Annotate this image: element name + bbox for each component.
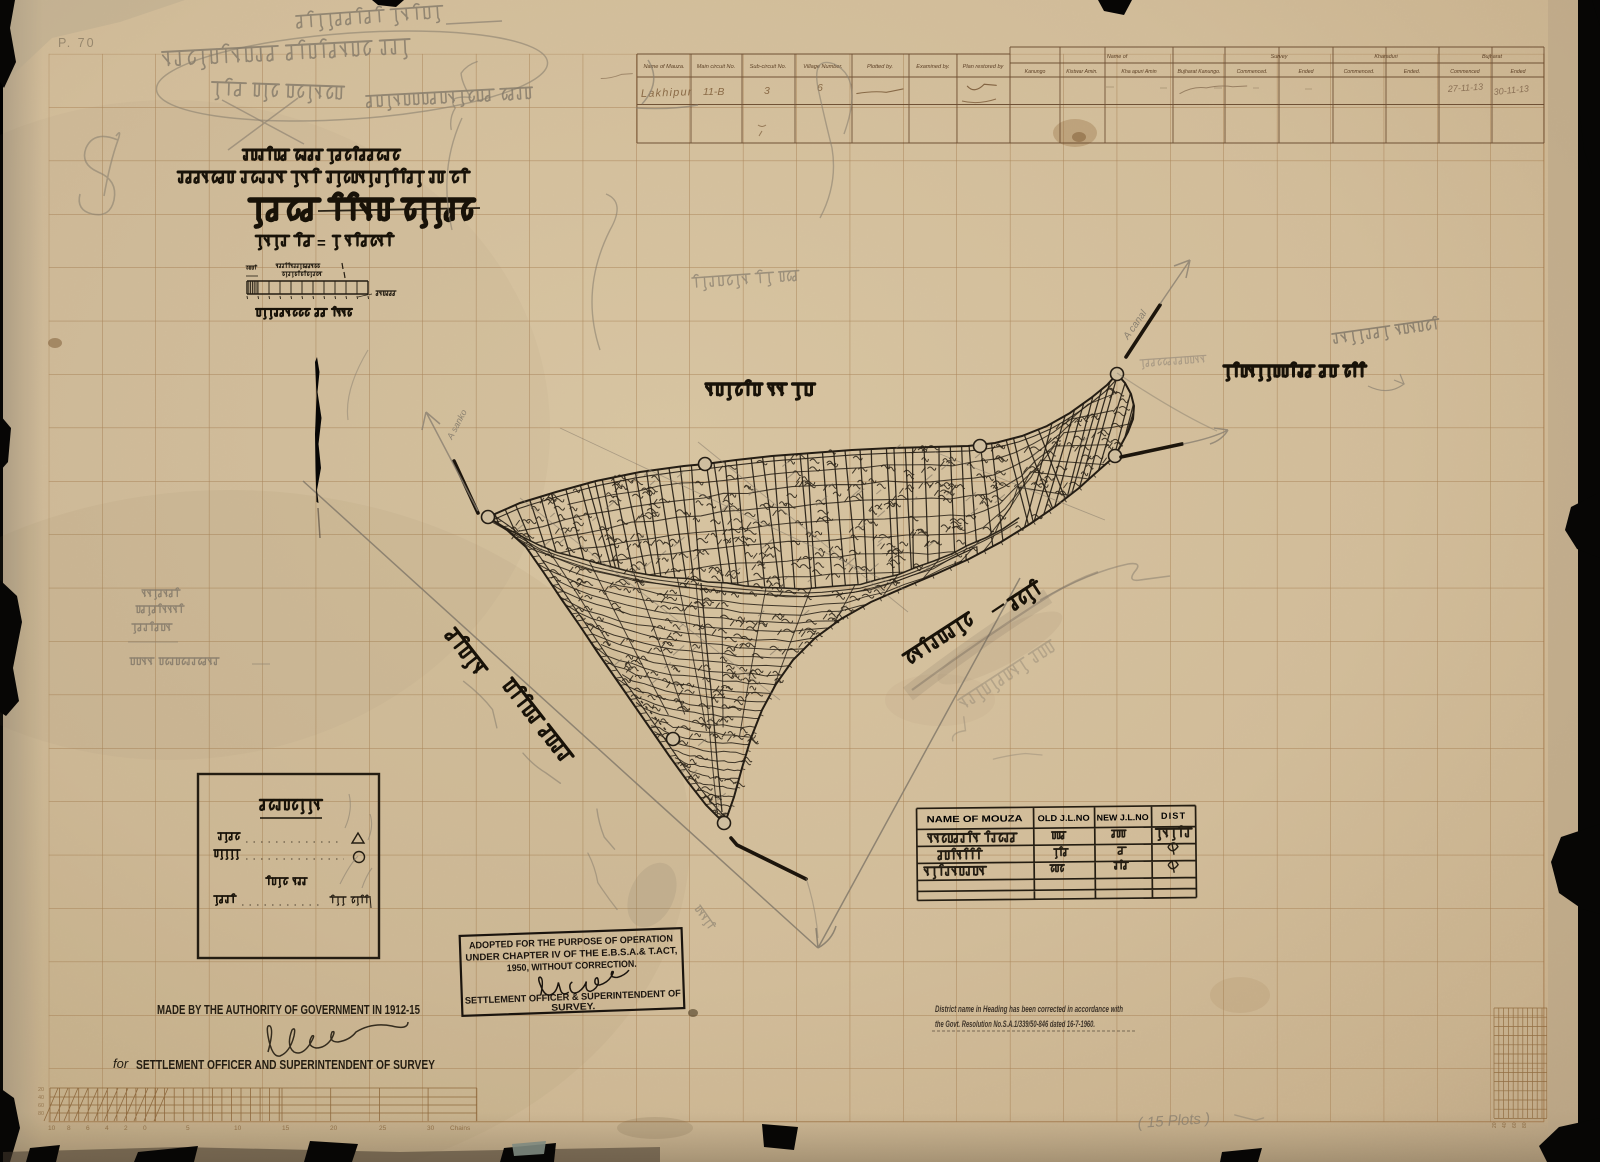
svg-text:2: 2 — [124, 1125, 128, 1132]
svg-text:Bujharat: Bujharat — [1482, 54, 1503, 60]
svg-text:10: 10 — [48, 1125, 56, 1132]
svg-text:Main circuit No.: Main circuit No. — [697, 64, 736, 70]
svg-text:80: 80 — [38, 1111, 44, 1117]
svg-text:25: 25 — [379, 1125, 387, 1132]
svg-text:Survey: Survey — [1271, 54, 1288, 60]
svg-text:OLD J.L.NO: OLD J.L.NO — [1038, 813, 1091, 824]
svg-text:MADE BY THE AUTHORITY OF GOVER: MADE BY THE AUTHORITY OF GOVERNMENT IN 1… — [157, 1003, 420, 1017]
svg-text:P. 70: P. 70 — [58, 36, 96, 50]
svg-text:60: 60 — [38, 1103, 44, 1109]
svg-text:Kharaduri: Kharaduri — [1374, 54, 1398, 60]
svg-text:Kanungo: Kanungo — [1025, 69, 1046, 75]
svg-text:NAME OF MOUZA: NAME OF MOUZA — [927, 813, 1024, 824]
svg-text:Ended: Ended — [1298, 69, 1314, 75]
svg-text:15: 15 — [282, 1125, 290, 1132]
svg-text:5: 5 — [186, 1125, 190, 1132]
svg-text:Ended.: Ended. — [1404, 69, 1420, 75]
svg-text:10: 10 — [234, 1125, 242, 1132]
svg-text:6: 6 — [86, 1125, 90, 1132]
svg-text:Name of: Name of — [1107, 54, 1128, 60]
svg-text:40: 40 — [38, 1095, 44, 1101]
svg-text:=: = — [317, 235, 326, 252]
svg-text:0: 0 — [143, 1125, 147, 1132]
svg-text:Commenced.: Commenced. — [1237, 69, 1268, 75]
svg-text:Examined by.: Examined by. — [916, 64, 950, 70]
svg-text:20: 20 — [1492, 1122, 1498, 1128]
svg-text:Kistwar Amin.: Kistwar Amin. — [1066, 69, 1098, 75]
svg-text:30: 30 — [427, 1125, 435, 1132]
svg-text:Plotted by.: Plotted by. — [867, 64, 893, 70]
svg-text:Bujharat Kanungo.: Bujharat Kanungo. — [1178, 69, 1221, 75]
svg-text:Name of Mauza.: Name of Mauza. — [643, 64, 684, 70]
svg-text:20: 20 — [38, 1087, 44, 1093]
svg-text:11-B: 11-B — [703, 86, 724, 98]
svg-text:NEW J.L.NO: NEW J.L.NO — [1097, 812, 1149, 823]
svg-text:DIST: DIST — [1161, 811, 1186, 821]
svg-text:60: 60 — [1512, 1122, 1518, 1128]
svg-text:Lakhipur: Lakhipur — [641, 86, 693, 100]
svg-text:for: for — [113, 1056, 129, 1071]
svg-text:District name in Heading has b: District name in Heading has been correc… — [935, 1004, 1123, 1015]
svg-text:20: 20 — [330, 1125, 338, 1132]
svg-text:Plan restored by: Plan restored by — [963, 64, 1005, 70]
svg-text:the Govt. Resolution No.S.A.1/: the Govt. Resolution No.S.A.1/339/50-846… — [935, 1019, 1095, 1030]
svg-text:SURVEY.: SURVEY. — [551, 1001, 595, 1014]
svg-text:80: 80 — [1522, 1122, 1528, 1128]
svg-text:Ended: Ended — [1510, 69, 1526, 75]
svg-text:Commenced.: Commenced. — [1344, 69, 1375, 75]
svg-text:3: 3 — [764, 85, 770, 97]
svg-text:40: 40 — [1502, 1122, 1508, 1128]
svg-text:8: 8 — [67, 1125, 71, 1132]
svg-text:Kha apuri Amin: Kha apuri Amin — [1121, 69, 1156, 75]
svg-text:Chains: Chains — [450, 1125, 471, 1132]
svg-text:SETTLEMENT OFFICER AND SUPERIN: SETTLEMENT OFFICER AND SUPERINTENDENT OF… — [136, 1058, 436, 1072]
svg-text:Commenced: Commenced — [1450, 69, 1481, 75]
svg-text:4: 4 — [105, 1125, 109, 1132]
svg-text:Sub-circuit No.: Sub-circuit No. — [750, 64, 787, 70]
